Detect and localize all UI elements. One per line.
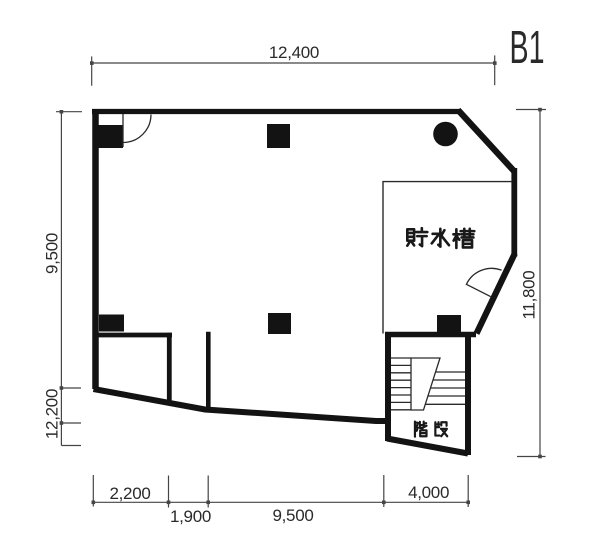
svg-text:2,200: 2,200 [109,484,150,503]
svg-text:9,500: 9,500 [272,506,313,525]
svg-text:12,400: 12,400 [269,43,319,62]
svg-text:4,000: 4,000 [408,483,449,502]
svg-text:12,200: 12,200 [42,389,61,439]
svg-text:9,500: 9,500 [43,233,62,274]
svg-text:11,800: 11,800 [520,271,539,320]
svg-text:B1: B1 [510,21,545,73]
svg-text:1,900: 1,900 [170,507,211,526]
